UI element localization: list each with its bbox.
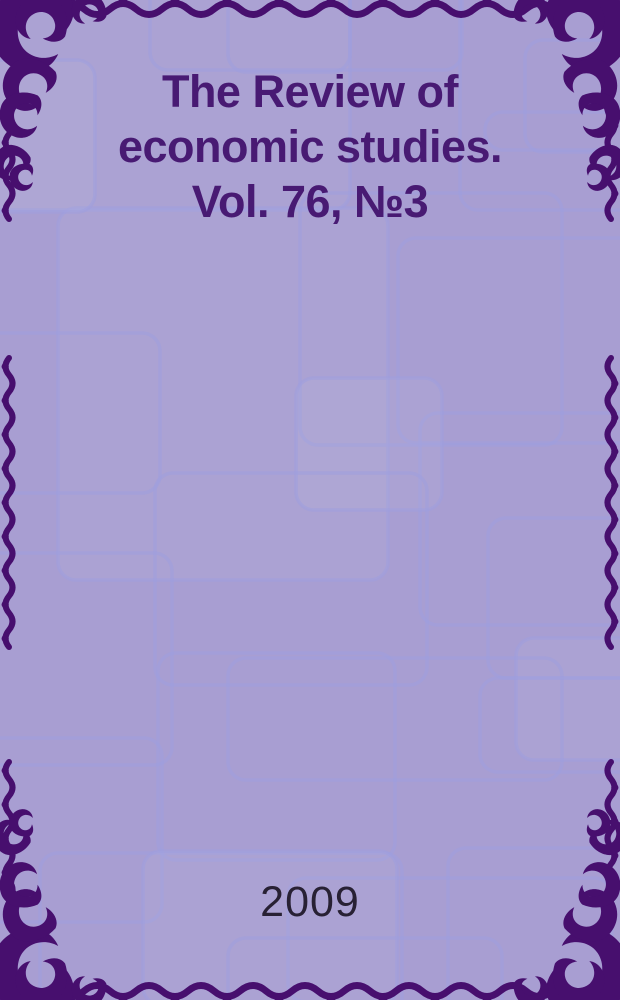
cover-title-line-3: Vol. 76, №3 [0, 174, 620, 229]
cover-title-line-2: economic studies. [0, 119, 620, 174]
cover-title-line-1: The Review of [0, 64, 620, 119]
cover-title: The Review of economic studies. Vol. 76,… [0, 64, 620, 229]
cover-year: 2009 [0, 879, 620, 925]
journal-cover: The Review of economic studies. Vol. 76,… [0, 0, 620, 1000]
